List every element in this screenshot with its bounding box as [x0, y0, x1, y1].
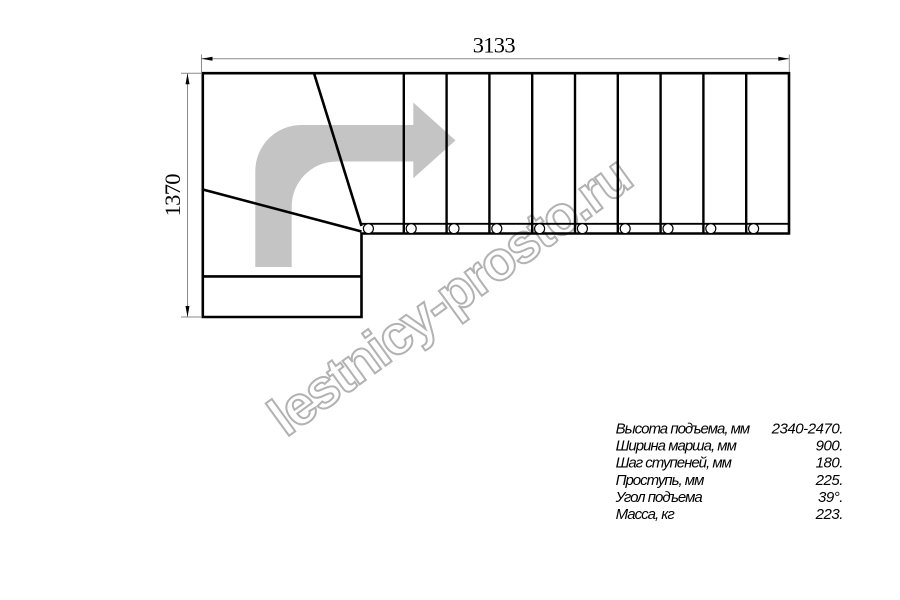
- svg-text:225.: 225.: [815, 472, 843, 489]
- svg-text:3133: 3133: [473, 33, 516, 58]
- svg-text:Шаг ступеней, мм: Шаг ступеней, мм: [616, 455, 732, 472]
- svg-text:1370: 1370: [160, 174, 185, 217]
- svg-text:Проступь, мм: Проступь, мм: [616, 472, 704, 489]
- svg-text:2340-2470.: 2340-2470.: [771, 421, 843, 438]
- svg-text:Высота подъема, мм: Высота подъема, мм: [616, 421, 750, 438]
- svg-text:223.: 223.: [815, 506, 843, 523]
- svg-text:Масса, кг: Масса, кг: [616, 506, 676, 523]
- svg-text:Ширина марша, мм: Ширина марша, мм: [616, 438, 737, 455]
- svg-text:180.: 180.: [816, 455, 843, 472]
- svg-text:Угол подъема: Угол подъема: [615, 489, 703, 506]
- svg-text:900.: 900.: [816, 438, 843, 455]
- svg-text:39°.: 39°.: [818, 489, 843, 506]
